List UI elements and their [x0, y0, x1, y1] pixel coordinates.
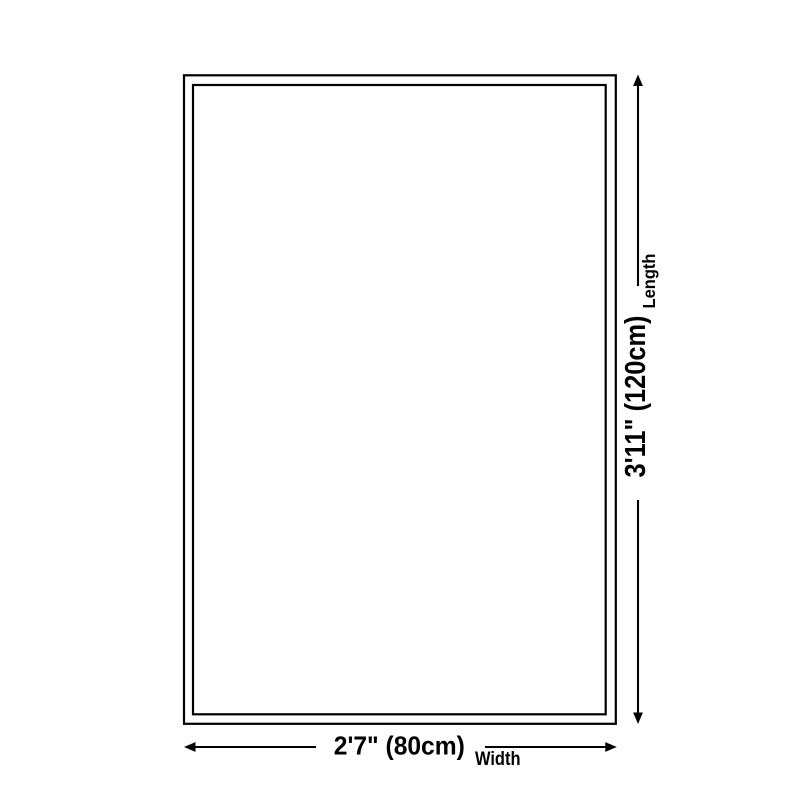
- svg-text:Length: Length: [639, 254, 659, 309]
- svg-text:2'7" (80cm): 2'7" (80cm): [334, 731, 465, 761]
- svg-text:3'11" (120cm): 3'11" (120cm): [620, 316, 652, 478]
- svg-text:Width: Width: [475, 749, 521, 770]
